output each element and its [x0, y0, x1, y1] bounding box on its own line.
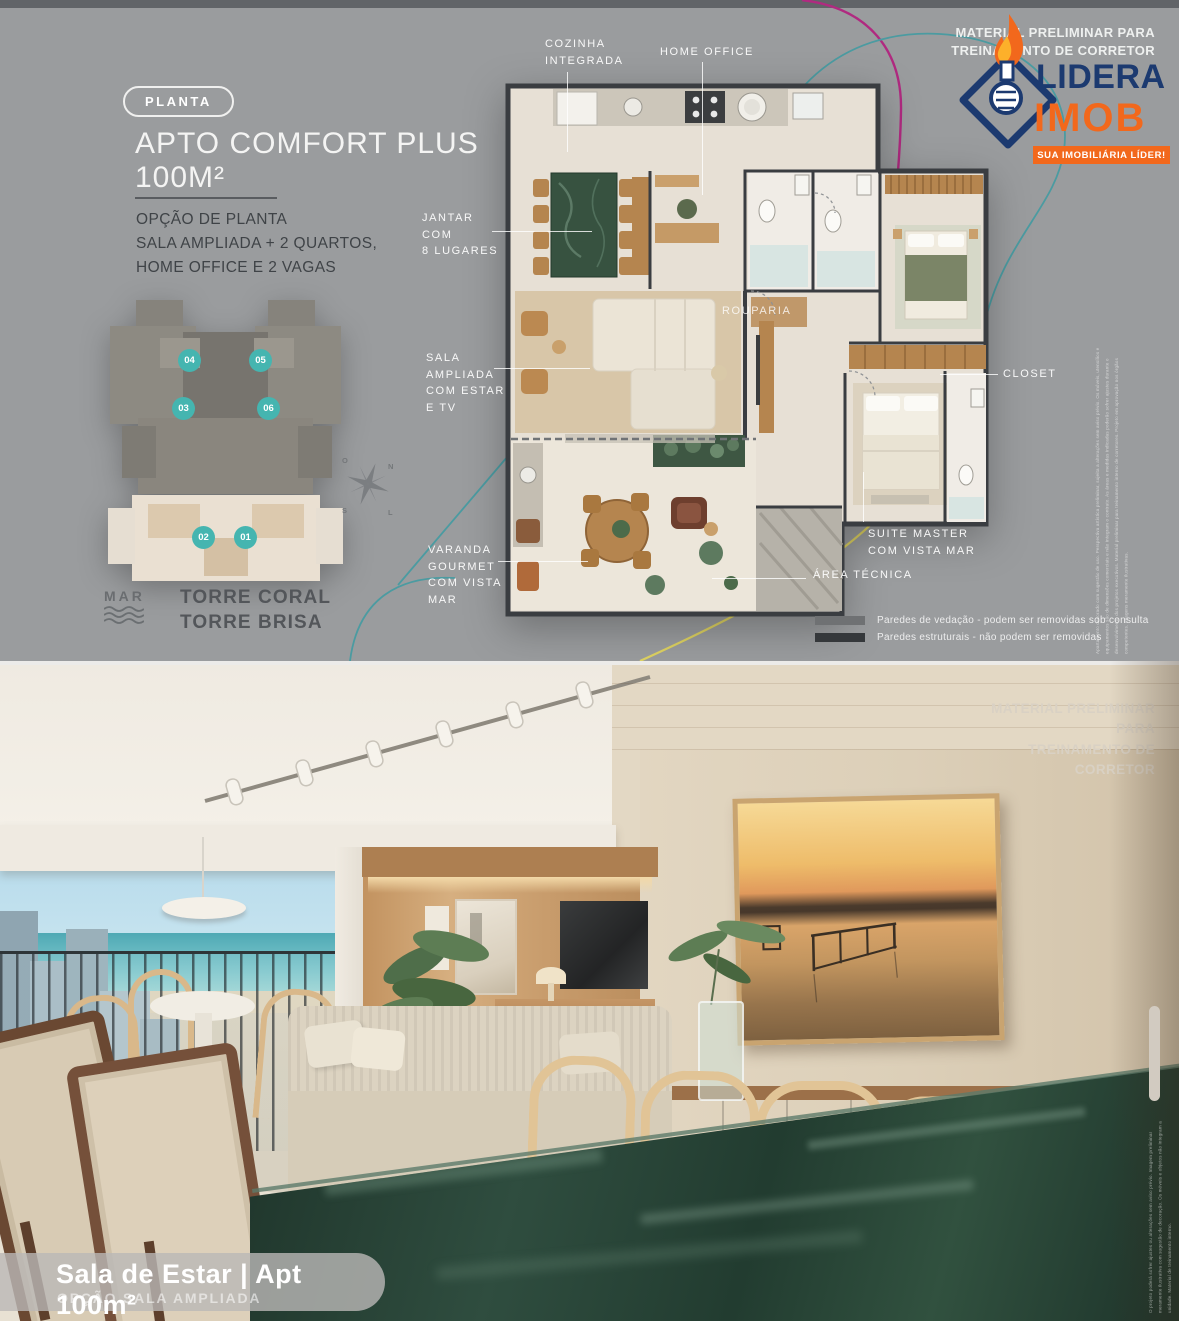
- unit-badge-06: 06: [257, 397, 280, 420]
- leader-area-tecnica: [712, 578, 806, 579]
- interior-render: MATERIAL PRELIMINAR PARA TREINAMENTO DE …: [0, 661, 1179, 1321]
- plate-mid-band: [138, 418, 313, 494]
- sunset-picture: [732, 793, 1004, 1046]
- legend-label-estrutural: Paredes estruturais - não podem ser remo…: [877, 632, 1102, 643]
- tv-screen: [560, 901, 648, 989]
- label-jantar: JANTAR COM 8 LUGARES: [422, 210, 498, 260]
- pendant-stem: [202, 837, 204, 901]
- plate-room: [252, 504, 304, 538]
- label-home-office: HOME OFFICE: [660, 44, 754, 61]
- wood-room-soffit: [362, 847, 658, 877]
- fine-print-top: Apartamento decorado com sugestão de uso…: [1093, 342, 1131, 654]
- page-title: APTO COMFORT PLUS 100M²: [135, 127, 479, 195]
- plate-room: [122, 426, 156, 478]
- kitchen: [553, 89, 823, 126]
- leader-cozinha: [567, 72, 568, 152]
- fine-print-bottom: O projeto poderá sofrer ajustes ou alter…: [1146, 1113, 1174, 1313]
- unit-badge-04: 04: [178, 349, 201, 372]
- compass-o: O: [342, 456, 348, 465]
- planta-badge: PLANTA: [123, 86, 234, 117]
- leader-closet: [940, 374, 998, 375]
- bathrooms: [745, 171, 880, 291]
- leader-varanda: [498, 561, 588, 562]
- waves-icon: [104, 606, 144, 624]
- sofa-pillow: [350, 1026, 406, 1071]
- leader-sala: [494, 368, 590, 369]
- leader-jantar: [492, 231, 592, 232]
- marble-vein: [808, 1107, 1086, 1150]
- compass-s: S: [342, 506, 347, 515]
- label-closet: CLOSET: [1003, 366, 1057, 383]
- legend-swatch-vedacao: [815, 616, 865, 625]
- page-title-area: 100M²: [135, 161, 479, 195]
- track-light: [0, 661, 700, 837]
- plan-option-subtitle: OPÇÃO DE PLANTA SALA AMPLIADA + 2 QUARTO…: [136, 208, 377, 280]
- marble-vein: [436, 1230, 863, 1279]
- plate-room: [298, 426, 332, 478]
- label-varanda: VARANDA GOURMET COM VISTA MAR: [428, 542, 502, 608]
- mar-label: MAR: [104, 588, 145, 604]
- cove-light-glow: [368, 877, 652, 893]
- wall-trim-capsule: [1149, 1006, 1160, 1101]
- title-divider: [135, 197, 277, 199]
- suite-bathroom: [945, 371, 986, 524]
- lidera-imob-logo: LIDERA IMOB SUA IMOBILIÁRIA LÍDER!: [952, 10, 1170, 175]
- logo-text-imob: IMOB: [1034, 96, 1146, 141]
- mushroom-lamp-base: [548, 983, 554, 1001]
- marble-vein: [641, 1179, 975, 1224]
- caption-subtitle: OPÇÃO SALA AMPLIADA: [57, 1290, 261, 1306]
- caption-box: Sala de Estar | Apt 100m² OPÇÃO SALA AMP…: [0, 1253, 385, 1311]
- compass-icon: O N S L: [340, 456, 396, 516]
- mar-block: MAR: [104, 588, 145, 629]
- legend-row-estrutural: Paredes estruturais - não podem ser remo…: [815, 632, 1102, 643]
- planta-badge-label: PLANTA: [123, 86, 234, 117]
- compass-n: N: [388, 462, 393, 471]
- legend-swatch-estrutural: [815, 633, 865, 642]
- logo-text-lidera: LIDERA: [1036, 58, 1166, 97]
- leader-suite: [863, 472, 864, 522]
- picture-fence-graphic: [738, 798, 1000, 1040]
- pendant-lamp: [162, 897, 246, 919]
- tower-plate-diagram: 04 05 03 06 02 01: [108, 298, 343, 583]
- section-divider: [0, 661, 1179, 665]
- floorplan-page: PLANTA APTO COMFORT PLUS 100M² OPÇÃO DE …: [0, 0, 1179, 661]
- label-sala: SALA AMPLIADA COM ESTAR E TV: [426, 350, 505, 416]
- compass-l: L: [388, 508, 393, 517]
- label-area-tecnica: ÁREA TÉCNICA: [813, 567, 913, 584]
- logo-tagline: SUA IMOBILIÁRIA LÍDER!: [1033, 146, 1170, 164]
- area-tecnica-room: [756, 507, 842, 611]
- page-title-line1: APTO COMFORT PLUS: [135, 127, 479, 161]
- plate-lower-wing: [316, 508, 343, 564]
- leader-home-office: [702, 62, 703, 195]
- label-cozinha: COZINHA INTEGRADA: [545, 36, 624, 69]
- label-suite: SUITE MASTER COM VISTA MAR: [868, 526, 975, 559]
- unit-badge-01: 01: [234, 526, 257, 549]
- unit-badge-03: 03: [172, 397, 195, 420]
- unit-badge-05: 05: [249, 349, 272, 372]
- tower-names: TORRE CORAL TORRE BRISA: [180, 586, 331, 635]
- plate-lower-wing: [108, 508, 135, 564]
- label-rouparia: ROUPARIA: [722, 303, 791, 320]
- unit-badge-02: 02: [192, 526, 215, 549]
- mushroom-lamp: [536, 967, 566, 984]
